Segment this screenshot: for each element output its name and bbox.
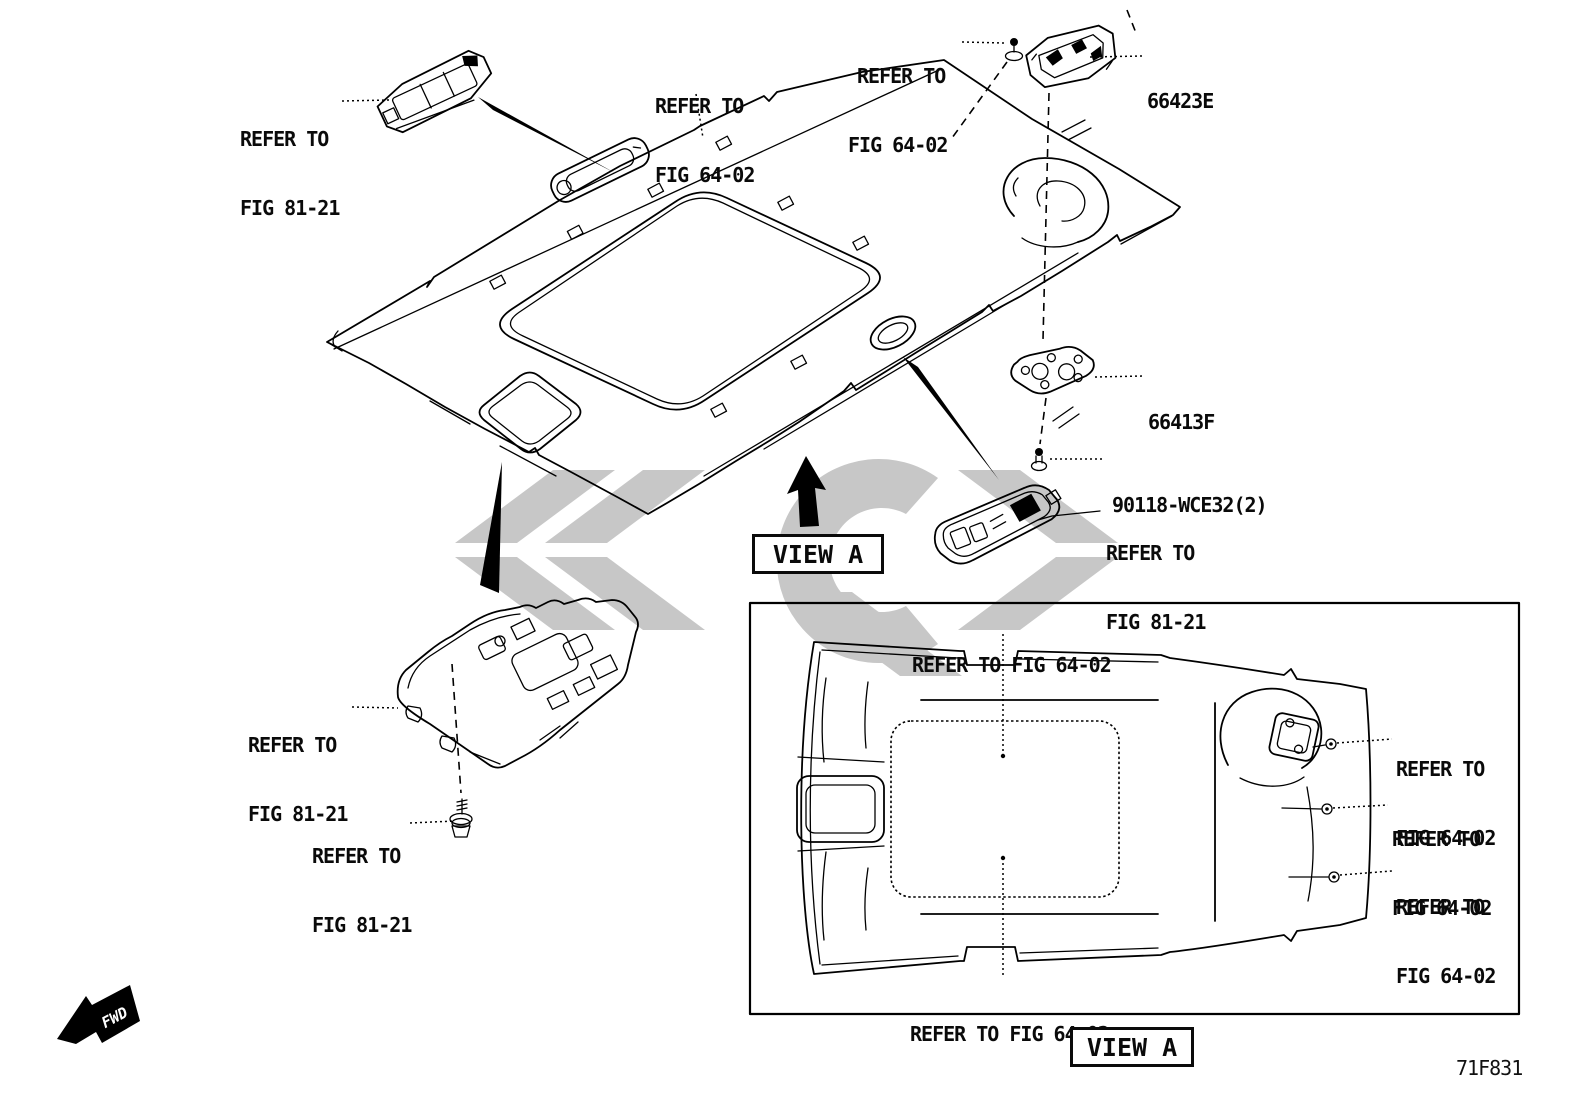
rear-lamp-opening xyxy=(865,310,920,357)
sunroof-opening xyxy=(500,192,880,409)
inset-sunroof-opening xyxy=(891,721,1119,897)
view-a-title-inset: VIEW A xyxy=(1070,1027,1194,1067)
inset-clip-grommets xyxy=(1282,739,1392,882)
callout-refer-fig-81-21-maplamp[interactable]: REFER TO FIG 81-21 xyxy=(240,82,339,243)
callout-part-66423e[interactable]: 66423E xyxy=(1147,44,1213,136)
parts-diagram-page: FWD REFER TO FIG 81-21 REFER TO FIG 64-0… xyxy=(0,0,1592,1099)
roof-clip-drawing xyxy=(1006,38,1023,61)
figure-code: 71F831 xyxy=(1456,1056,1522,1080)
screw-90118-drawing xyxy=(1032,448,1047,471)
map-lamp-assembly-drawing xyxy=(372,46,498,138)
bracket-66413f-drawing xyxy=(1008,342,1098,399)
console-opening xyxy=(480,373,581,453)
inset-rear-lamp xyxy=(1220,689,1321,787)
callout-inset-refer-fig-64-02-r3[interactable]: REFER TO FIG 64-02 xyxy=(1396,850,1495,1011)
callout-refer-fig-81-21-rearlamp[interactable]: REFER TO FIG 81-21 xyxy=(1106,496,1205,657)
callout-inset-refer-fig-64-02-top[interactable]: REFER TO FIG 64-02 xyxy=(912,608,1111,700)
fwd-arrow-icon: FWD xyxy=(57,985,140,1044)
console-screw-drawing xyxy=(450,799,472,837)
view-a-title-main: VIEW A xyxy=(752,534,884,574)
rear-garnish-spiral xyxy=(1003,158,1108,247)
lamp-66423e-drawing xyxy=(1021,18,1123,95)
callout-part-66413f[interactable]: 66413F xyxy=(1148,365,1214,457)
callout-refer-fig-64-02-clip[interactable]: REFER TO FIG 64-02 xyxy=(848,19,947,180)
callout-refer-fig-81-21-screw[interactable]: REFER TO FIG 81-21 xyxy=(312,799,411,960)
callout-refer-fig-64-02-roof-front[interactable]: REFER TO FIG 64-02 xyxy=(655,49,754,210)
